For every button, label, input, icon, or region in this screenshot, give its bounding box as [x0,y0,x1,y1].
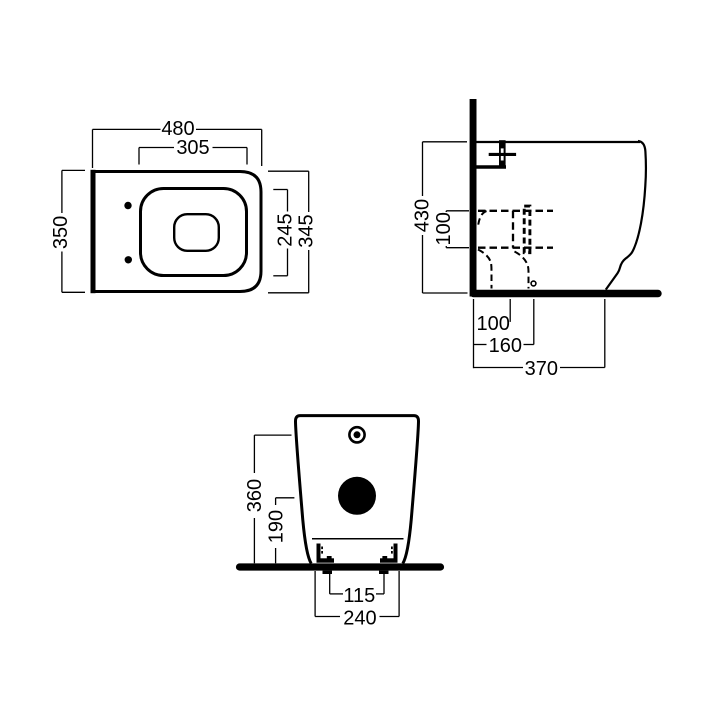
svg-text:305: 305 [176,137,209,159]
svg-text:350: 350 [50,216,72,249]
svg-text:160: 160 [489,335,522,357]
svg-text:430: 430 [412,199,434,232]
svg-text:115: 115 [343,585,375,607]
svg-text:190: 190 [265,510,287,543]
svg-text:245: 245 [275,213,297,246]
svg-text:100: 100 [433,212,455,245]
svg-text:360: 360 [244,479,266,512]
svg-text:370: 370 [525,358,558,380]
svg-text:100: 100 [477,313,510,335]
svg-text:345: 345 [296,214,318,247]
svg-text:240: 240 [343,608,376,630]
